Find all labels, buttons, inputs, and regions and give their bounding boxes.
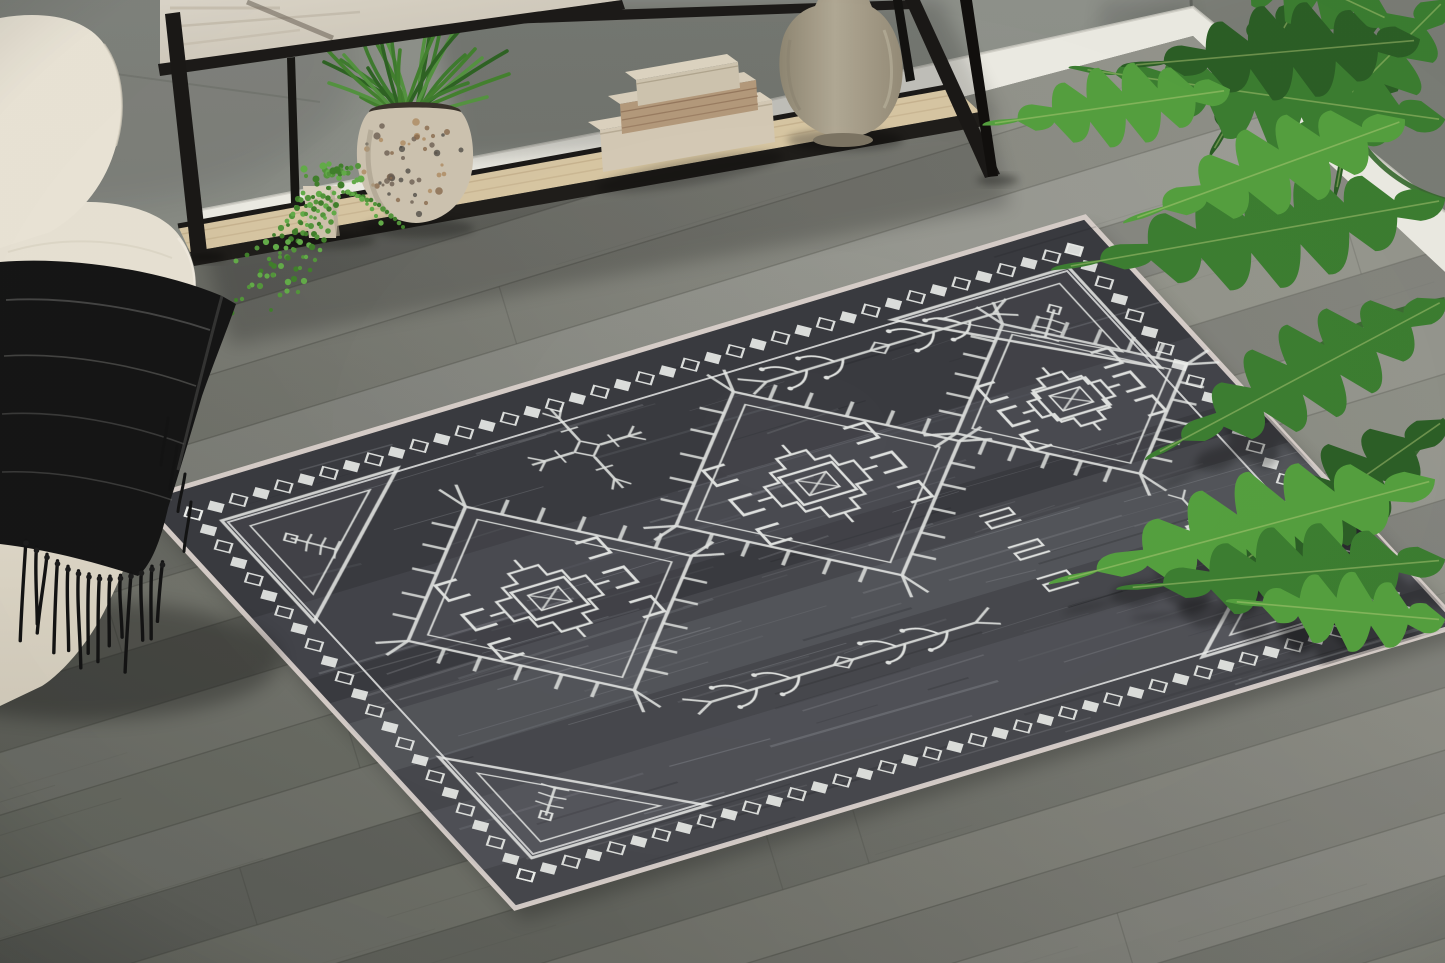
- vignette-overlay: [0, 0, 1445, 963]
- photo-stage: Living room scene: charcoal distressed t…: [0, 0, 1445, 963]
- living-room-photo: Living room scene: charcoal distressed t…: [0, 0, 1445, 963]
